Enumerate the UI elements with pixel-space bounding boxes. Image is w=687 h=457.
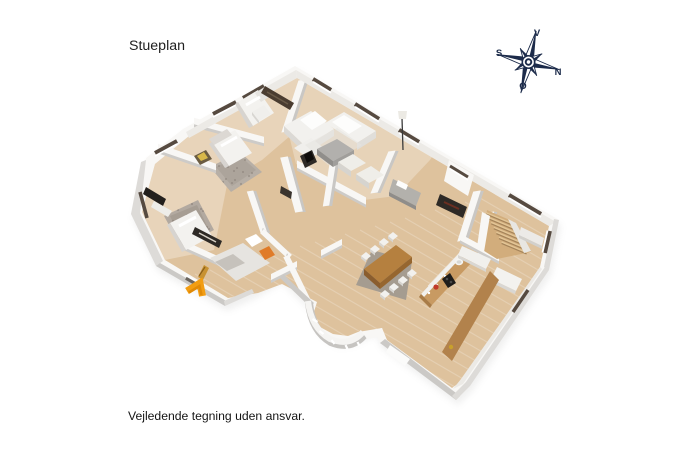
svg-text:S: S — [496, 48, 502, 59]
svg-text:V: V — [534, 28, 541, 39]
svg-text:Vejledende tegning uden ansvar: Vejledende tegning uden ansvar. — [128, 409, 305, 423]
svg-text:Stueplan: Stueplan — [129, 38, 185, 54]
svg-text:Ø: Ø — [519, 81, 526, 92]
svg-text:N: N — [555, 67, 562, 78]
